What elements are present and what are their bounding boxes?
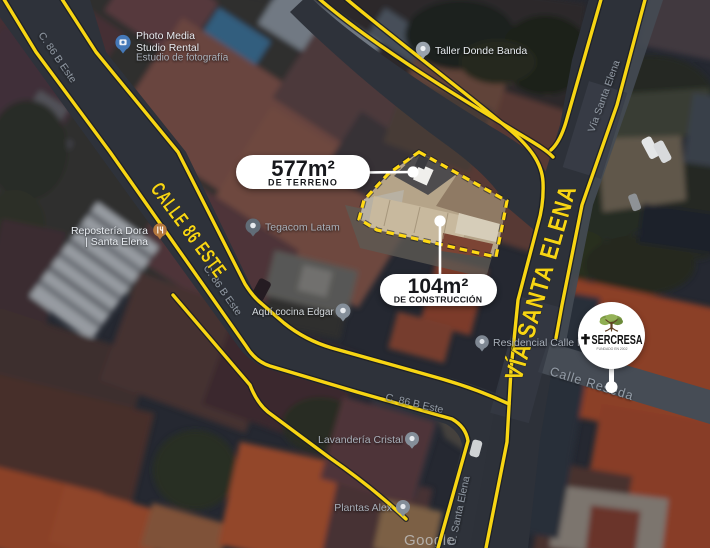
svg-text:SERCRESA: SERCRESA [592, 332, 643, 347]
svg-text:| Santa Elena: | Santa Elena [85, 236, 148, 248]
svg-text:Aquí cocina Edgar: Aquí cocina Edgar [252, 307, 334, 318]
svg-text:DE CONSTRUCCIÓN: DE CONSTRUCCIÓN [394, 294, 482, 305]
svg-text:Lavandería Cristal: Lavandería Cristal [318, 434, 403, 446]
svg-text:Taller Donde Banda: Taller Donde Banda [435, 45, 527, 57]
svg-text:DE TERRENO: DE TERRENO [268, 178, 338, 188]
svg-text:Tegacom Latam: Tegacom Latam [265, 222, 340, 234]
svg-text:Plantas Alex: Plantas Alex [334, 502, 393, 514]
svg-text:Photo Media: Photo Media [136, 30, 195, 42]
svg-text:Residencial Calle R: Residencial Calle R [493, 337, 585, 349]
svg-text:FUNDADO EN 2002: FUNDADO EN 2002 [597, 347, 628, 351]
svg-text:Estudio de fotografía: Estudio de fotografía [136, 53, 229, 64]
